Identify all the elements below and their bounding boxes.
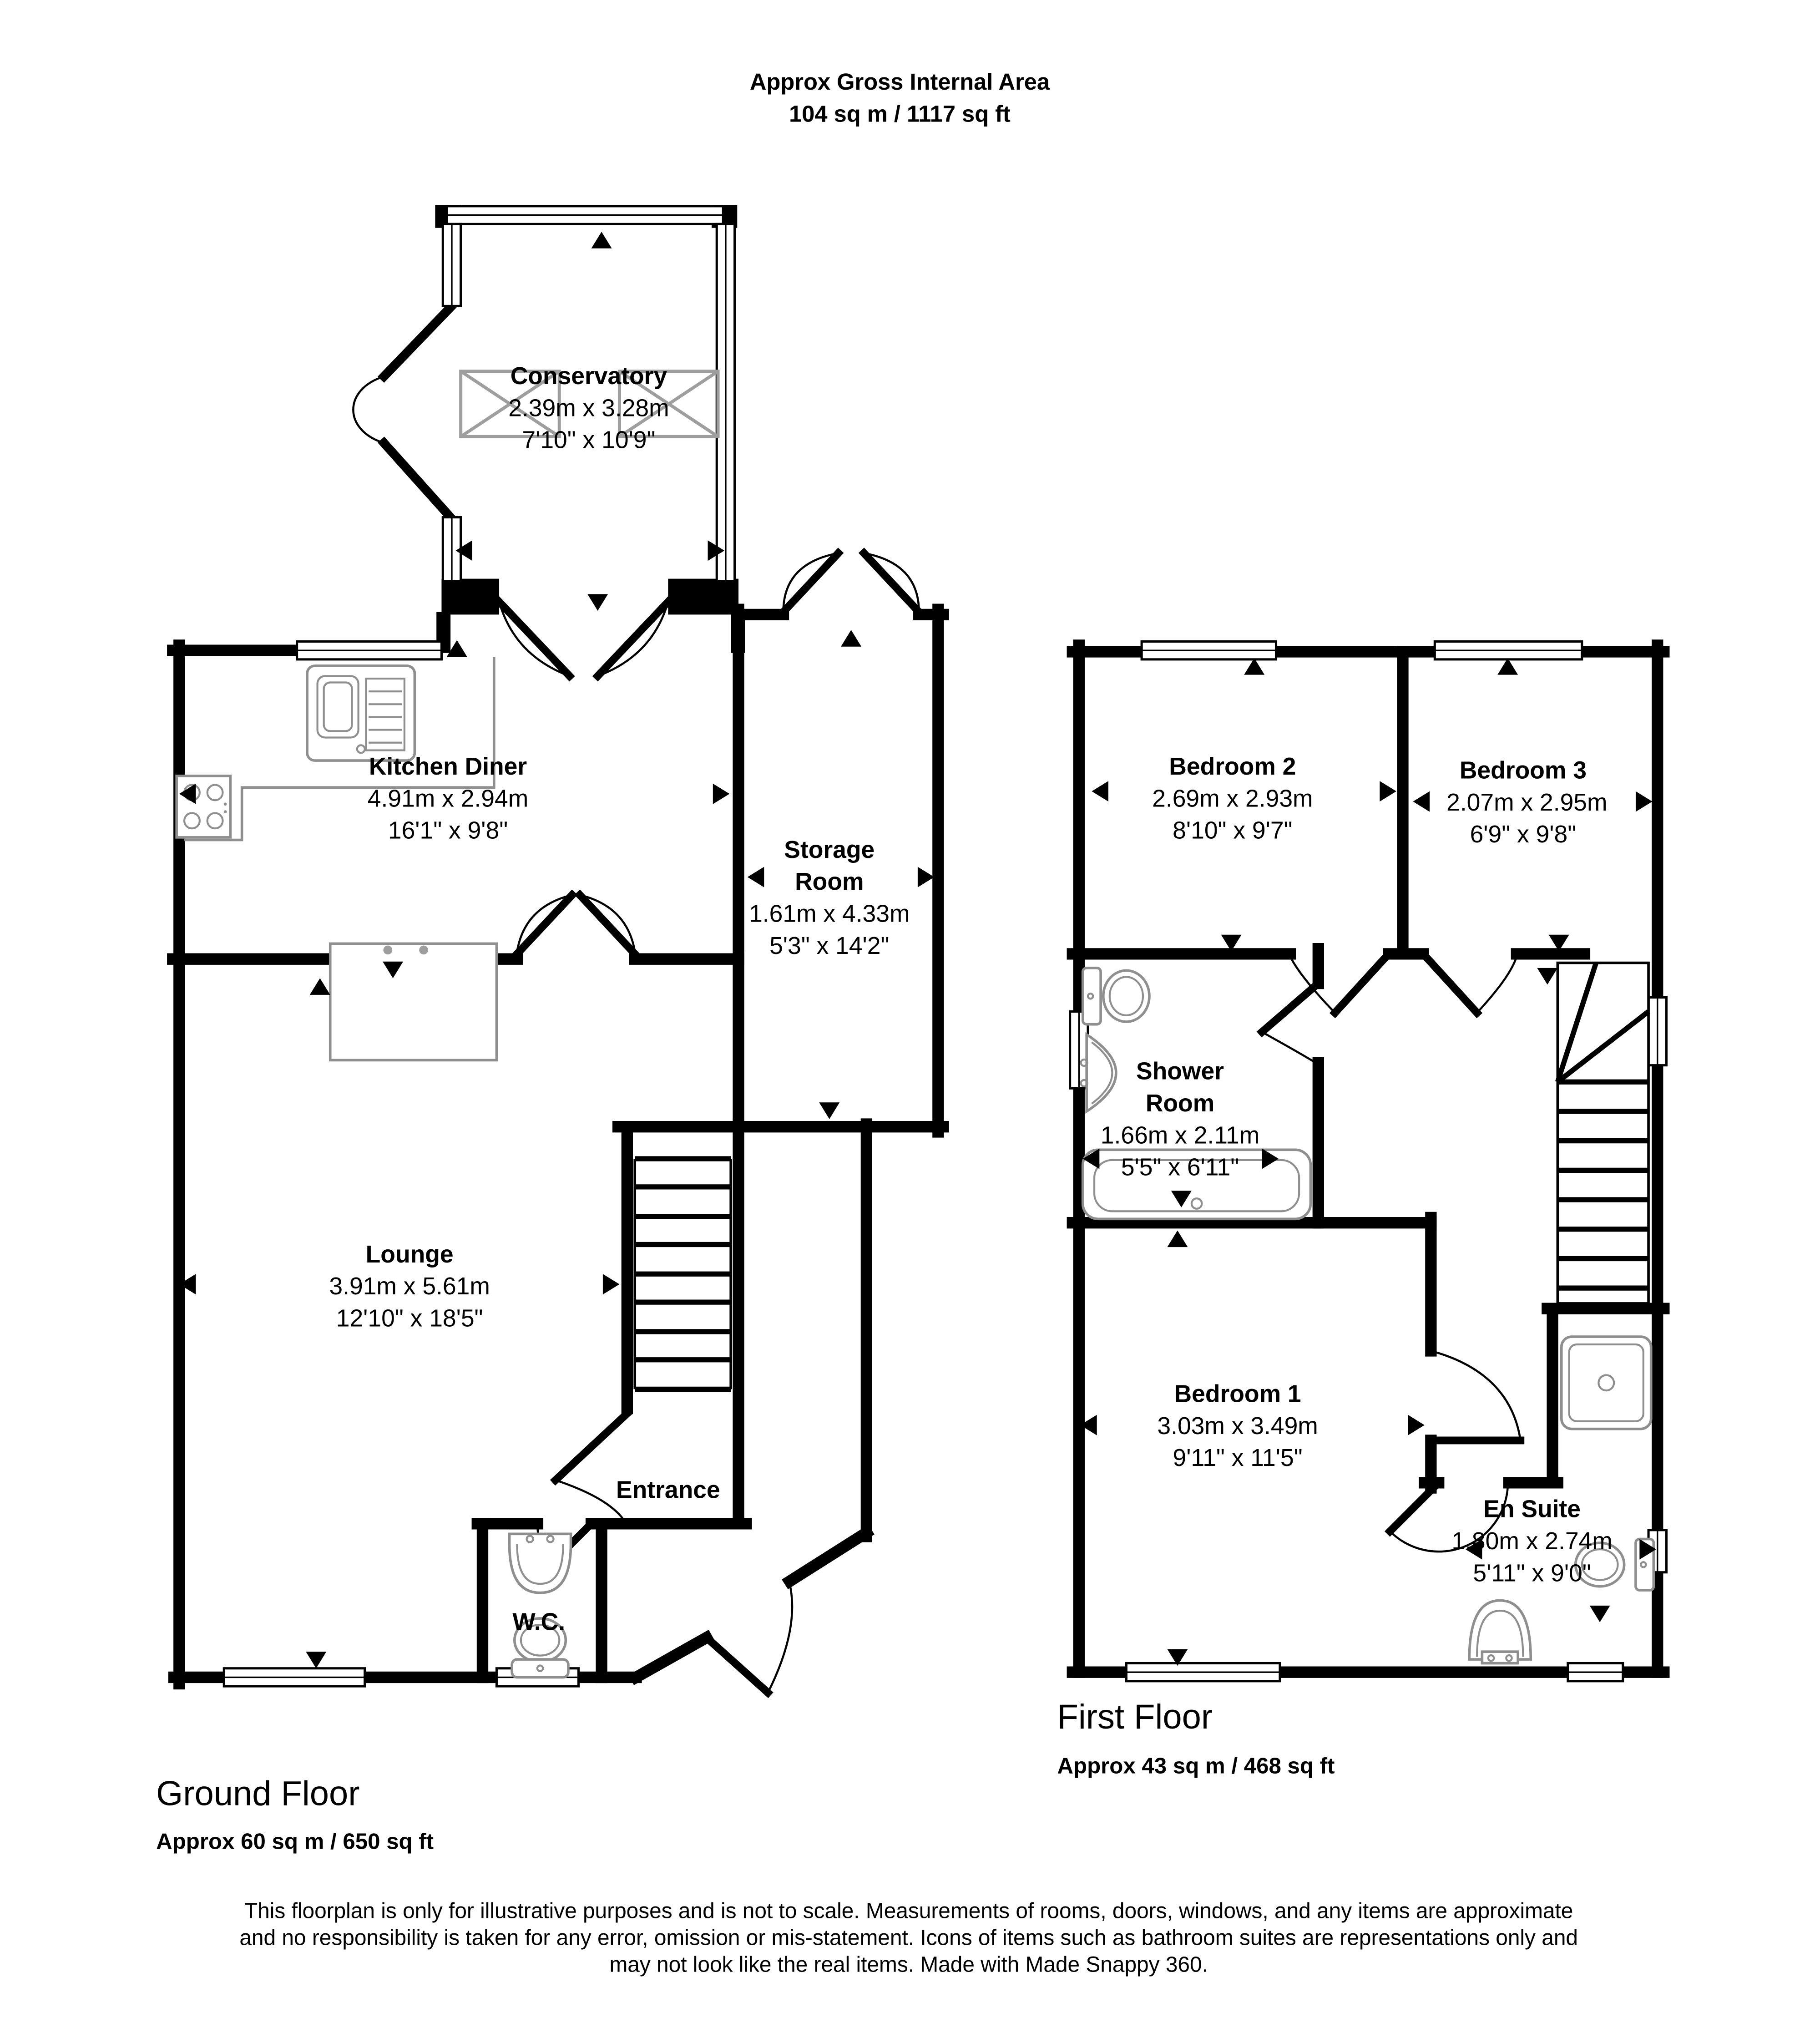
window xyxy=(447,206,723,224)
shower-tray-icon xyxy=(1562,1337,1651,1429)
room-dim-metric: 4.91m x 2.94m xyxy=(368,785,528,812)
room-dim-imperial: 16'1" x 9'8" xyxy=(388,817,508,844)
window xyxy=(1126,1663,1280,1681)
dimension-arrow xyxy=(1413,791,1430,812)
dimension-arrow xyxy=(587,594,608,611)
room-bedroom1: Bedroom 1 3.03m x 3.49m 9'11" x 11'5" xyxy=(1157,1381,1318,1472)
room-dim-metric: 3.03m x 3.49m xyxy=(1157,1413,1318,1440)
first-floor-label: First Floor xyxy=(1057,1698,1213,1736)
room-dim-imperial: 8'10" x 9'7" xyxy=(1173,817,1292,844)
dimension-arrow xyxy=(713,784,730,804)
stairs-first xyxy=(1557,963,1648,1303)
door-swing xyxy=(353,376,384,443)
dimension-arrow xyxy=(1408,1415,1425,1435)
room-dim-metric: 2.07m x 2.95m xyxy=(1446,789,1607,816)
ground-floor-label: Ground Floor xyxy=(156,1775,359,1813)
room-conservatory: Conservatory 2.39m x 3.28m 7'10" x 10'9" xyxy=(508,363,669,454)
room-kitchen-diner: Kitchen Diner 4.91m x 2.94m 16'1" x 9'8" xyxy=(368,753,528,844)
sink-icon xyxy=(510,1534,571,1592)
room-dim-metric: 2.39m x 3.28m xyxy=(508,395,669,421)
room-bedroom2: Bedroom 2 2.69m x 2.93m 8'10" x 9'7" xyxy=(1152,753,1313,844)
dimension-arrow xyxy=(310,978,330,995)
room-bedroom3: Bedroom 3 2.07m x 2.95m 6'9" x 9'8" xyxy=(1446,757,1607,848)
dimension-arrow xyxy=(1636,791,1653,812)
dimension-arrow xyxy=(748,867,764,887)
room-label: Room xyxy=(1146,1090,1214,1117)
room-label: Kitchen Diner xyxy=(369,753,527,780)
title-line2: 104 sq m / 1117 sq ft xyxy=(789,101,1011,127)
dimension-arrow xyxy=(819,1102,839,1119)
door-swing xyxy=(1423,954,1517,1013)
stairs-ground xyxy=(635,1159,731,1389)
ground-floor-plan: Conservatory 2.39m x 3.28m 7'10" x 10'9"… xyxy=(156,205,943,1854)
ground-floor-area: Approx 60 sq m / 650 sq ft xyxy=(156,1829,434,1854)
floorplan-svg: Approx Gross Internal Area 104 sq m / 11… xyxy=(0,0,1820,2023)
plan-title: Approx Gross Internal Area 104 sq m / 11… xyxy=(750,69,1050,127)
window xyxy=(1568,1663,1623,1681)
dimension-arrow xyxy=(1244,658,1264,675)
hob-icon xyxy=(177,776,230,837)
door-swing xyxy=(864,553,919,612)
disclaimer-line1: This floorplan is only for illustrative … xyxy=(244,1899,1573,1923)
window xyxy=(443,224,460,306)
door-swing xyxy=(707,1584,792,1693)
sink-icon xyxy=(307,666,415,761)
window xyxy=(1142,641,1276,659)
first-floor-area: Approx 43 sq m / 468 sq ft xyxy=(1057,1753,1335,1778)
room-label: Bedroom 3 xyxy=(1460,757,1587,784)
room-shower: Shower Room 1.66m x 2.11m 5'5" x 6'11" xyxy=(1101,1058,1259,1181)
first-floor-plan: Bedroom 2 2.69m x 2.93m 8'10" x 9'7" Bed… xyxy=(1057,641,1666,1778)
room-dim-imperial: 9'11" x 11'5" xyxy=(1173,1445,1303,1471)
room-label: Bedroom 2 xyxy=(1169,753,1296,780)
dimension-arrow xyxy=(591,232,612,248)
room-storage: Storage Room 1.61m x 4.33m 5'3" x 14'2" xyxy=(749,837,910,959)
door-swing xyxy=(1262,984,1319,1063)
room-label: Bedroom 1 xyxy=(1174,1381,1301,1408)
room-dim-imperial: 5'5" x 6'11" xyxy=(1121,1154,1239,1181)
floorplan-page: { "title": { "line1": "Approx Gross Inte… xyxy=(0,0,1820,2023)
room-dim-imperial: 7'10" x 10'9" xyxy=(522,427,655,454)
door-swing xyxy=(784,553,839,612)
window xyxy=(1648,998,1666,1065)
dimension-arrow xyxy=(1380,781,1396,801)
disclaimer: This floorplan is only for illustrative … xyxy=(239,1899,1578,1977)
dimension-arrow xyxy=(918,867,935,887)
door-swing xyxy=(517,895,572,953)
door-swing xyxy=(598,602,668,676)
window xyxy=(297,641,442,659)
room-dim-imperial: 12'10" x 18'5" xyxy=(336,1305,483,1332)
room-wc-label: W.C. xyxy=(512,1608,565,1635)
room-dim-imperial: 6'9" x 9'8" xyxy=(1470,821,1577,848)
title-line1: Approx Gross Internal Area xyxy=(750,69,1050,95)
window xyxy=(1435,641,1582,659)
disclaimer-line3: may not look like the real items. Made w… xyxy=(609,1952,1208,1977)
dimension-arrow xyxy=(1092,781,1108,801)
dimension-arrow xyxy=(603,1274,620,1294)
room-ensuite: En Suite 1.80m x 2.74m 5'11" x 9'0" xyxy=(1451,1496,1612,1587)
dimension-arrow xyxy=(1167,1231,1188,1247)
room-label: Conservatory xyxy=(511,363,667,390)
room-dim-metric: 3.91m x 5.61m xyxy=(329,1273,490,1300)
room-dim-imperial: 5'3" x 14'2" xyxy=(769,933,889,959)
dimension-arrow xyxy=(1537,968,1557,985)
sink-icon xyxy=(1469,1601,1531,1663)
room-dim-metric: 1.80m x 2.74m xyxy=(1451,1528,1612,1555)
dimension-arrow xyxy=(1590,1606,1610,1622)
room-label: En Suite xyxy=(1483,1496,1581,1523)
dimension-arrow xyxy=(841,630,861,647)
toilet-icon xyxy=(1083,968,1149,1024)
sink-icon xyxy=(1081,1034,1116,1111)
window xyxy=(224,1668,364,1686)
room-dim-metric: 2.69m x 2.93m xyxy=(1152,785,1313,812)
room-label: Lounge xyxy=(366,1241,454,1268)
door-swing xyxy=(1431,1351,1521,1440)
room-label: Storage xyxy=(784,837,875,863)
room-dim-imperial: 5'11" x 9'0" xyxy=(1473,1560,1591,1587)
disclaimer-line2: and no responsibility is taken for any e… xyxy=(239,1926,1578,1950)
door-swing xyxy=(499,602,570,676)
room-lounge: Lounge 3.91m x 5.61m 12'10" x 18'5" xyxy=(329,1241,490,1332)
dimension-arrow xyxy=(306,1652,326,1668)
dimension-arrow xyxy=(1497,658,1518,675)
door-swing xyxy=(580,895,635,953)
room-label: Shower xyxy=(1136,1058,1224,1085)
door-swing xyxy=(556,1414,627,1521)
room-entrance-label: Entrance xyxy=(616,1477,720,1504)
room-label: Room xyxy=(795,868,864,895)
room-dim-metric: 1.66m x 2.11m xyxy=(1101,1122,1259,1149)
door-swing xyxy=(1290,954,1389,1013)
room-dim-metric: 1.61m x 4.33m xyxy=(749,901,910,928)
